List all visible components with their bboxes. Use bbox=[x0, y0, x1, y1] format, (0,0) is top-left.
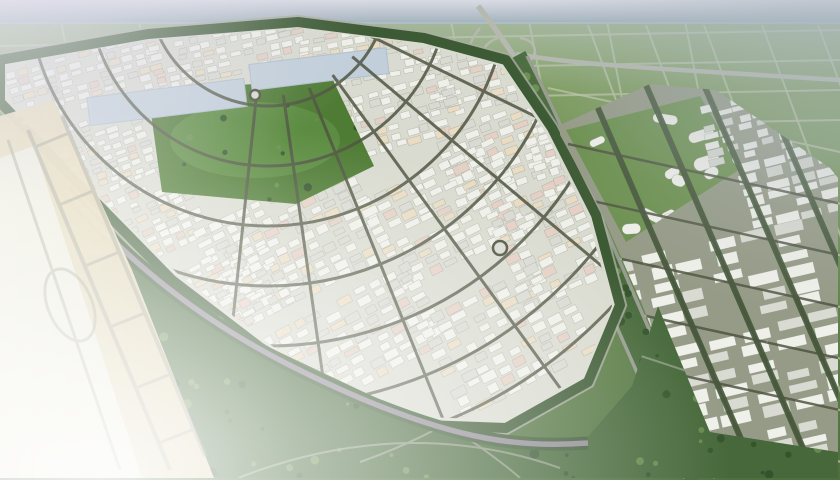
render-canvas bbox=[0, 0, 840, 480]
aerial-city-render bbox=[0, 0, 840, 480]
haze-right bbox=[0, 0, 840, 480]
